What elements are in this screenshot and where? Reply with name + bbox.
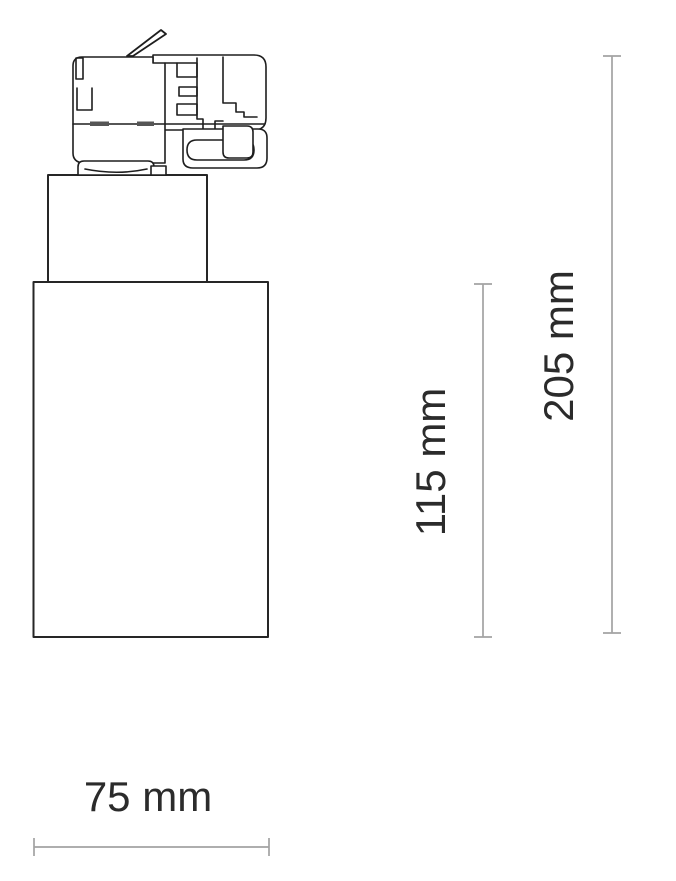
diagram-canvas: 75 mm 115 mm 205 mm bbox=[0, 0, 676, 881]
housing-height-dimension-label: 115 mm bbox=[410, 388, 452, 537]
total-height-dimension-label: 205 mm bbox=[538, 270, 580, 422]
total-height-dimension-line bbox=[603, 56, 621, 633]
adapter-foot bbox=[78, 161, 166, 175]
adapter-latch-box bbox=[223, 126, 253, 158]
mount-neck-outline bbox=[48, 175, 207, 283]
housing-height-dimension-line bbox=[474, 284, 492, 637]
width-dimension-line bbox=[34, 838, 269, 856]
lamp-body-outline bbox=[34, 282, 269, 637]
adapter-lever bbox=[127, 30, 166, 56]
width-dimension-label: 75 mm bbox=[84, 776, 212, 818]
track-adapter-outline bbox=[73, 30, 267, 175]
spotlight-dimension-drawing bbox=[0, 0, 676, 881]
fixture-outline bbox=[34, 175, 269, 637]
adapter-right-block bbox=[153, 55, 266, 130]
